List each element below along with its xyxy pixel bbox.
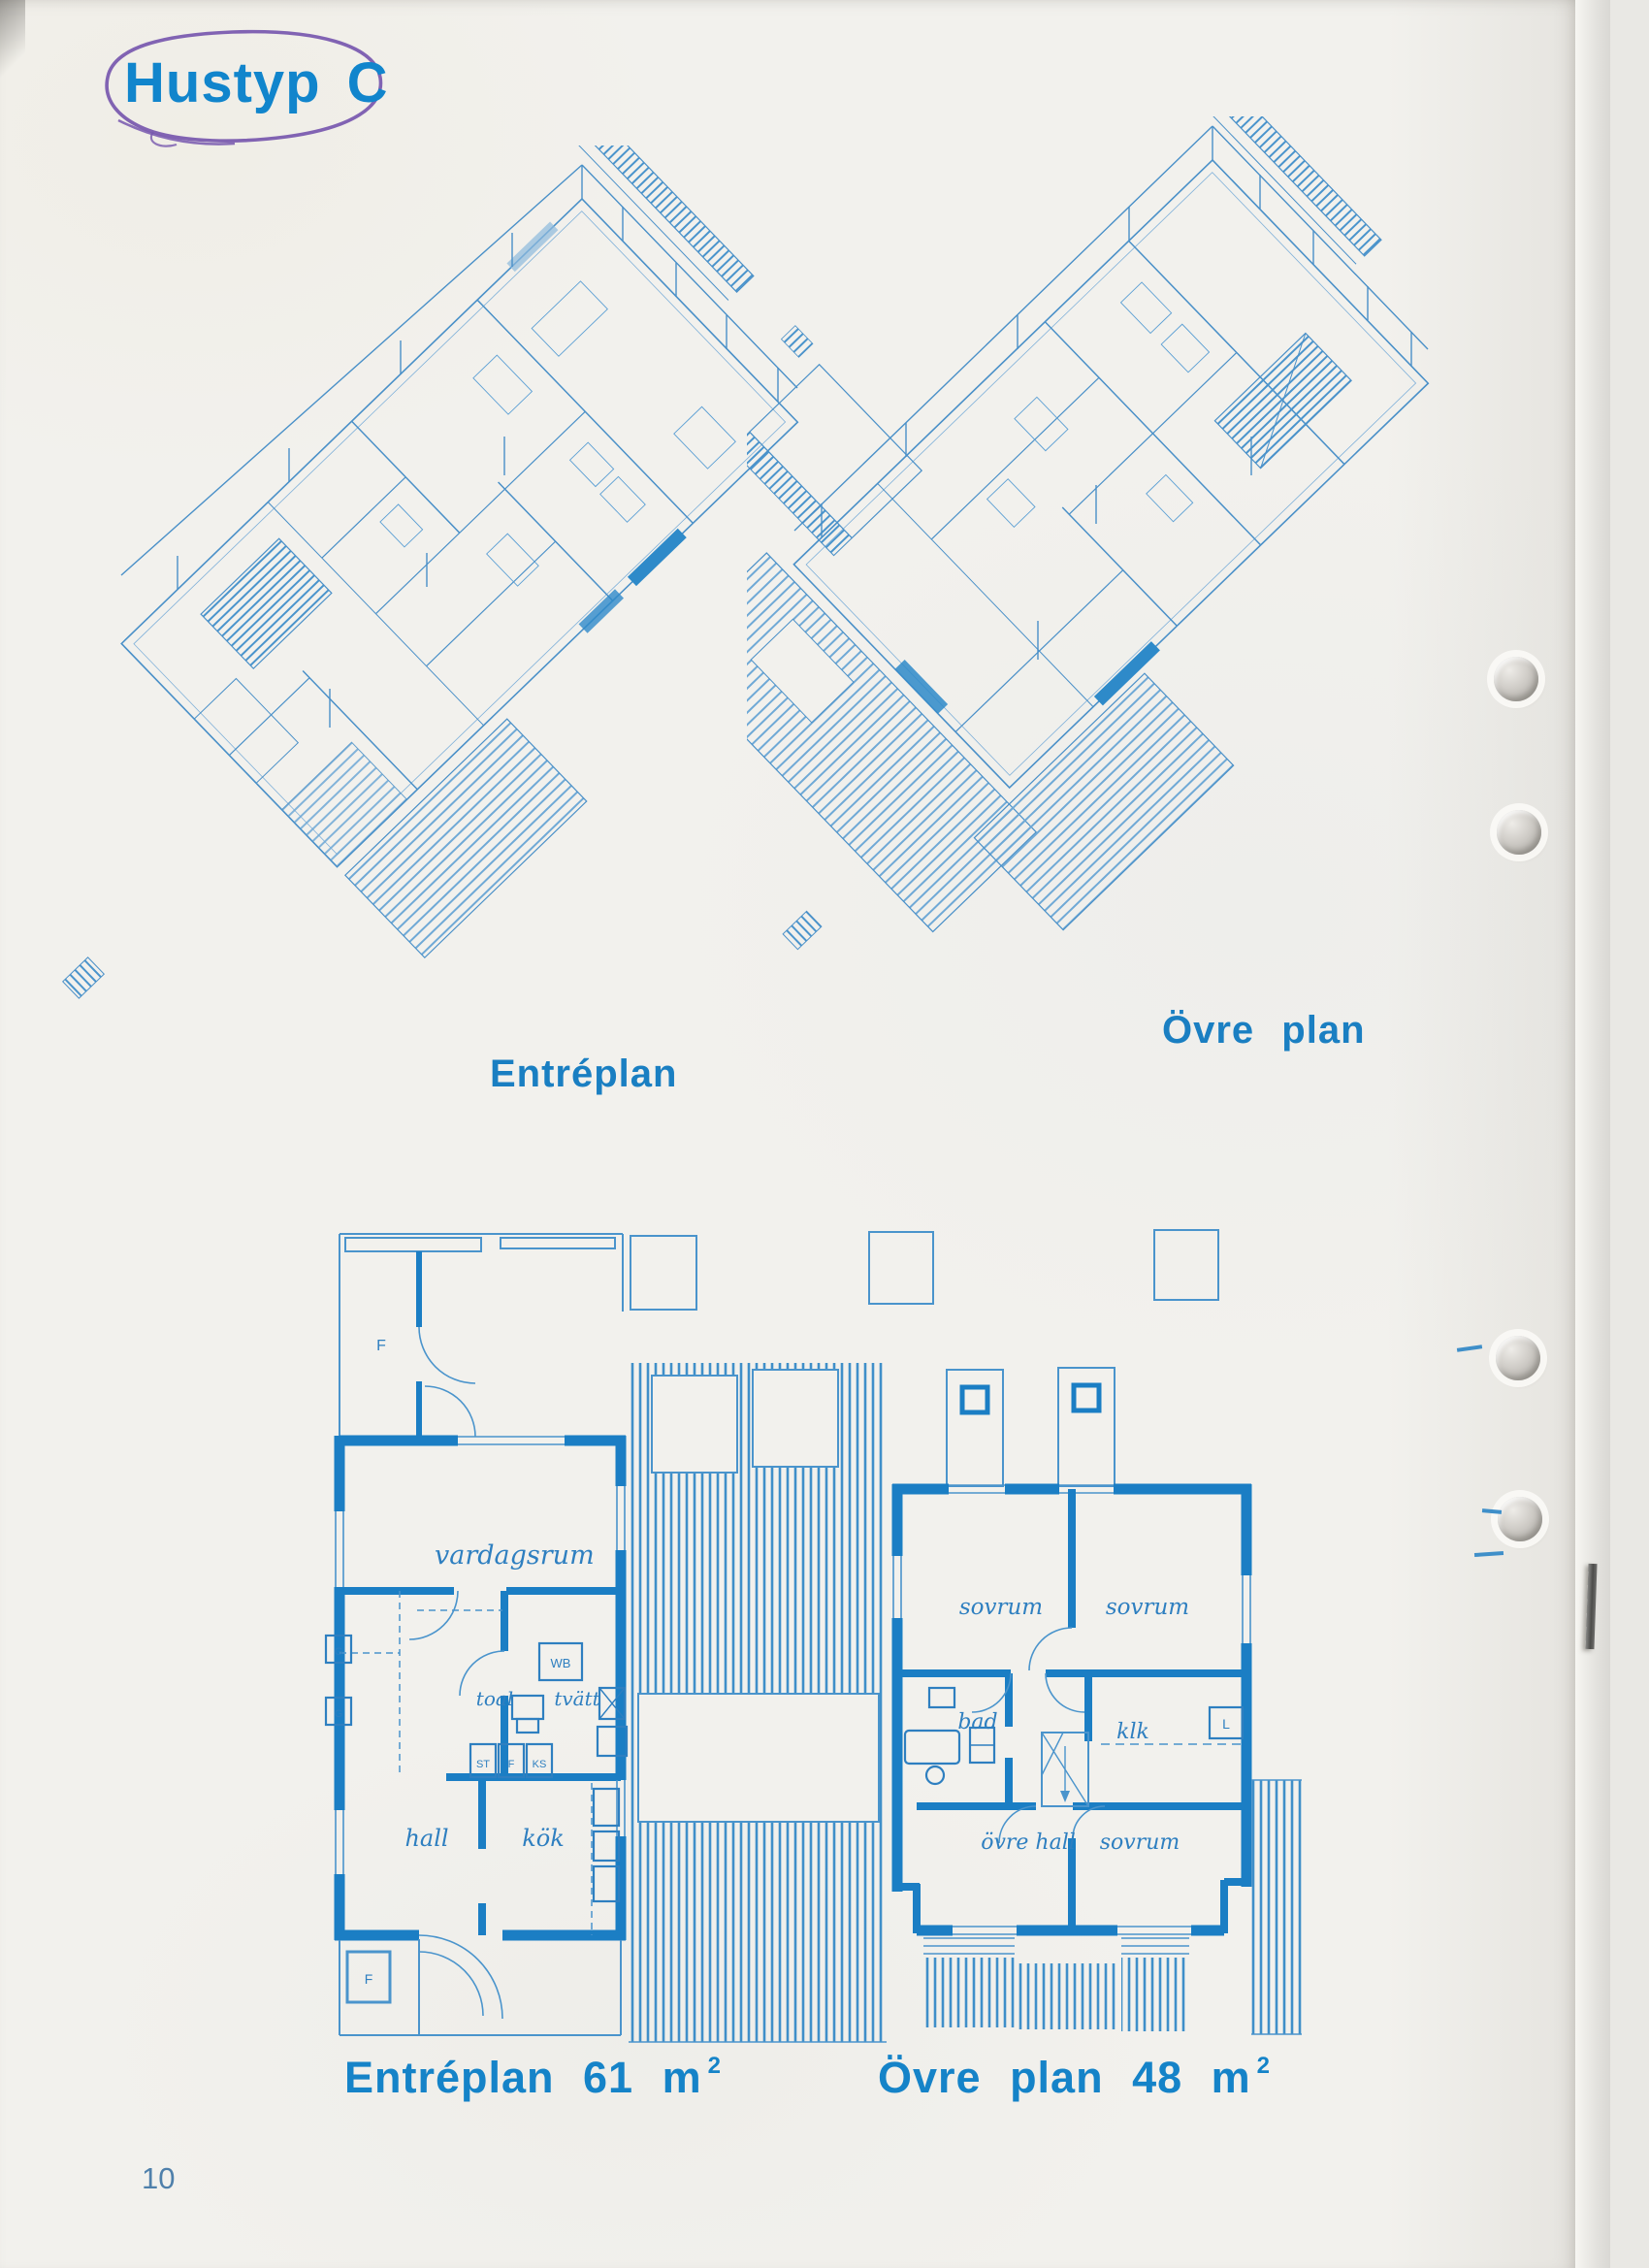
paper-sheet: Hustyp C	[0, 0, 1575, 2268]
room-label-klk: klk	[1116, 1720, 1149, 1744]
entreplan-axon-furniture	[353, 277, 735, 658]
room-label-hall: hall	[404, 1825, 448, 1852]
room-label-sovrum-right: sovrum	[1106, 1595, 1189, 1620]
binder-hole-2	[1497, 810, 1541, 855]
page-number: 10	[142, 2161, 175, 2196]
scan-corner-shadow	[0, 0, 25, 87]
ovreplan-axonometric-drawing	[747, 116, 1494, 1019]
entreplan-axon-floor	[80, 146, 805, 957]
room-label-sovrum-left: sovrum	[959, 1595, 1043, 1620]
room-label-f-mid: F	[508, 1759, 515, 1770]
stair-symbol	[1042, 1733, 1088, 1806]
entreplan-caption-text: Entréplan 61 m	[344, 2053, 702, 2102]
entreplan-caption-sup: 2	[708, 2053, 722, 2079]
room-label-bad: bad	[957, 1710, 997, 1734]
room-label-ks: KS	[533, 1759, 547, 1770]
room-label-l: L	[1222, 1716, 1230, 1732]
room-label-ovre-hall: övre hall	[981, 1831, 1076, 1855]
binder-hole-4	[1498, 1497, 1542, 1541]
room-label-wb: WB	[551, 1656, 571, 1670]
ovreplan-caption-sup: 2	[1257, 2053, 1271, 2079]
page-title: Hustyp C	[124, 50, 389, 115]
entreplan-axon-label: Entréplan	[490, 1053, 677, 1096]
ovreplan-axon-floor	[747, 116, 1494, 996]
room-label-st: ST	[476, 1759, 490, 1770]
room-label-f-bottom: F	[365, 1971, 373, 1987]
page-edge	[1575, 0, 1610, 2268]
ovreplan-caption-text: Övre plan 48 m	[878, 2053, 1251, 2102]
room-label-g-upper: G	[335, 1646, 343, 1658]
room-label-g-lower: G	[335, 1708, 343, 1720]
stairs	[201, 538, 332, 668]
entreplan-caption: Entréplan 61 m2	[344, 2053, 716, 2103]
roof-wing	[974, 673, 1233, 929]
roof-wing	[345, 719, 587, 957]
roof-hatch-band	[629, 1230, 1218, 2042]
room-label-f-top: F	[376, 1338, 386, 1354]
roof-plane	[747, 553, 1036, 932]
detached-hatch-fragment	[783, 911, 822, 949]
ovreplan-floor-plan: sovrum sovrum bad klk L övre hall sovrum	[892, 1368, 1302, 2034]
scanner-background	[1610, 0, 1649, 2268]
room-label-toal: toal	[476, 1687, 513, 1710]
detached-hatch-fragment	[63, 957, 105, 998]
entreplan-axonometric-drawing	[39, 146, 805, 1067]
room-label-kok: kök	[522, 1825, 565, 1852]
floor-plans-drawing: vardagsrum toal tvätt WB ST F KS hall kö…	[310, 1222, 1309, 2047]
scanned-brochure-page: Hustyp C	[0, 0, 1649, 2268]
binder-hole-3	[1496, 1336, 1540, 1380]
ovreplan-caption: Övre plan 48 m2	[878, 2053, 1265, 2103]
garage-block	[750, 365, 922, 538]
room-label-tvatt: tvätt	[554, 1687, 600, 1710]
window-band	[628, 529, 687, 586]
binder-hole-1	[1494, 657, 1538, 701]
ovreplan-axon-label: Övre plan	[1162, 1009, 1366, 1053]
room-label-sovrum-bottom: sovrum	[1100, 1831, 1180, 1855]
room-label-vardagsrum: vardagsrum	[435, 1540, 595, 1571]
entreplan-floor-plan: vardagsrum toal tvätt WB ST F KS hall kö…	[326, 1234, 627, 2035]
